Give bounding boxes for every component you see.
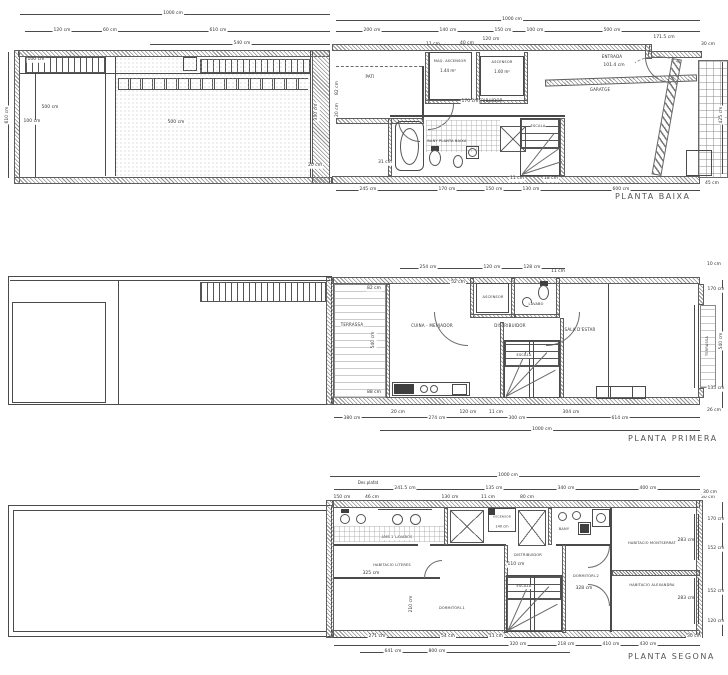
dim-label: 330 cm	[315, 103, 320, 122]
wall-line	[334, 544, 418, 546]
shower-xbox	[518, 510, 546, 546]
dim-label: 320 cm	[509, 643, 528, 648]
roof-inner-box	[12, 302, 106, 403]
dim-label: 45 cm	[704, 182, 720, 187]
shower-xbox	[450, 510, 484, 543]
dim-label: 641 cm	[384, 650, 403, 655]
stipple-floor	[115, 57, 310, 176]
door-arc	[424, 560, 442, 578]
wall-hatched	[511, 278, 515, 318]
dim-label: 170 cm	[438, 188, 457, 193]
plan-title-segona: PLANTA SEGONA	[628, 652, 715, 661]
dim-label: 18 cm	[543, 177, 559, 182]
dim-label: 200 cm	[363, 29, 382, 34]
wall-hatched	[560, 118, 565, 176]
area-label: 1.60 m²	[493, 70, 511, 74]
bathtub-inner	[400, 128, 419, 165]
dim-label: 500 cm	[167, 121, 186, 126]
wall-line	[105, 57, 106, 176]
dim-label: 254 cm	[419, 266, 438, 271]
toilet-icon	[340, 514, 350, 524]
dim-label: 20 cm	[390, 411, 406, 416]
dim-label: 101.4 cm	[602, 64, 625, 69]
room-label-ascensor: ASCENSOR	[493, 515, 511, 518]
room-label-escala: ESCALA	[531, 125, 546, 129]
dim-line	[334, 637, 700, 638]
room-label-entrada: ENTRADA	[602, 55, 622, 59]
room-label-terrassa: TERRASSA	[341, 323, 364, 327]
wall-line	[390, 115, 565, 117]
room-label-balco: TERRASSA	[706, 336, 710, 356]
dim-label: 1000 cm	[497, 474, 519, 479]
dim-label: 1000 cm	[531, 428, 553, 433]
wall-line	[115, 57, 116, 176]
wall-hatched	[560, 318, 564, 398]
dim-label: 82 cm	[336, 80, 341, 96]
stair-stringer	[534, 575, 535, 632]
door-arc	[588, 584, 610, 606]
dim-label: 283 cm	[677, 539, 696, 544]
dim-label: 31 cm	[377, 161, 393, 166]
dim-label: 610 cm	[6, 106, 11, 125]
room-label-ascensor: ASCENSOR	[492, 61, 513, 65]
dim-label: 283 cm	[677, 597, 696, 602]
wall-hatched	[500, 322, 504, 398]
toilet-icon	[429, 150, 441, 166]
hob-box	[452, 384, 467, 395]
room-label-ascensor: ASCENSOR	[483, 296, 504, 300]
dim-label: 128 cm	[523, 266, 542, 271]
dim-label: 30 cm	[686, 635, 702, 640]
stairs	[200, 282, 326, 302]
dim-label: 210 cm	[410, 595, 415, 614]
door-arc	[588, 546, 610, 568]
dim-label: 140 cm	[494, 525, 509, 529]
window	[694, 305, 699, 388]
dim-label: 171.5 cm	[652, 36, 675, 41]
room-label-bany1: AMB 2 LAVABOS	[382, 536, 413, 540]
room-label-escala: ESCALA	[517, 354, 532, 358]
dim-label: 800 cm	[428, 650, 447, 655]
dim-label: 400 cm	[639, 487, 658, 492]
room-label-montserrat: HABITACIO MONTSERRAT	[628, 542, 676, 546]
wall-hatched	[548, 508, 552, 545]
annotation-label: Des plafat	[357, 481, 379, 485]
room-label-pati: PATI	[365, 75, 374, 79]
sofa-tick	[632, 386, 633, 399]
dim-label: 170 cm	[461, 100, 480, 105]
dim-label: 425 cm	[720, 106, 725, 125]
room-label-literes: HABITACIO LITERES	[373, 564, 411, 568]
dim-label: 500 cm	[603, 29, 622, 34]
dim-label: 1000 cm	[501, 18, 523, 23]
dim-label: 274 cm	[428, 417, 447, 422]
dim-label: 170 cm	[707, 518, 726, 523]
roof-line	[118, 280, 119, 405]
dim-label: 82 cm	[366, 287, 382, 292]
dim-label: 120 cm	[483, 266, 502, 271]
room-label-maq: MAQ. ASCENSOR	[434, 60, 466, 64]
terrace-decking	[334, 284, 386, 398]
wall-hatched	[386, 284, 390, 398]
dim-label: 540 cm	[233, 42, 252, 47]
dim-label: 150 cm	[494, 29, 513, 34]
sink-icon	[572, 511, 581, 520]
dim-label: 430 cm	[639, 643, 658, 648]
stove-icon	[394, 384, 414, 394]
sink-icon	[430, 385, 438, 393]
dim-label: 380 cm	[343, 417, 362, 422]
wall-line	[35, 73, 36, 177]
room-label-sala: SALA D'ESTAR	[565, 328, 596, 332]
dim-label: 540 cm	[720, 332, 725, 351]
dim-label: 410 cm	[602, 643, 621, 648]
door-arc	[434, 312, 468, 346]
stair-stringer	[533, 340, 534, 398]
wall-hatched	[562, 545, 566, 633]
garage-corner-box	[686, 150, 712, 176]
toilet-tank	[341, 509, 349, 513]
wall-hatched	[18, 50, 330, 57]
wall-hatched	[14, 50, 20, 184]
partition-wall-hatched	[612, 570, 700, 576]
dim-label: 170 cm	[707, 288, 726, 293]
room-label-distribuidor: DISTRIBUIDOR	[514, 554, 542, 558]
dim-label: 100 cm	[526, 29, 545, 34]
washer-drum	[580, 524, 589, 533]
sofa	[596, 386, 646, 399]
wall-hatched	[332, 44, 650, 51]
wall-hatched	[524, 52, 528, 104]
dim-label: 60 cm	[102, 29, 118, 34]
dim-label: 11 cm	[488, 411, 504, 416]
dim-label: 304 cm	[562, 411, 581, 416]
dim-label: 11 cm	[550, 270, 566, 275]
wall-hatched	[326, 500, 334, 638]
sink-icon	[468, 148, 477, 157]
dim-label: 100 cm	[27, 58, 46, 63]
wall-hatched	[326, 277, 334, 405]
dim-label: 152 cm	[707, 590, 726, 595]
wall-hatched	[332, 500, 700, 508]
dim-label: 110 cm	[507, 563, 526, 568]
sink-icon	[558, 512, 567, 521]
plan-title-baixa: PLANTA BAIXA	[615, 192, 690, 201]
sink-icon	[420, 385, 428, 393]
dim-label: 10 cm	[706, 263, 722, 268]
dim-line	[336, 31, 700, 32]
dim-label: 245 cm	[359, 188, 378, 193]
sofa-tick	[610, 386, 611, 399]
dim-label: 540 cm	[372, 331, 377, 350]
room-label-distribuidor: DISTRIBUIDOR	[494, 324, 525, 328]
dim-label: 241.5 cm	[393, 487, 416, 492]
dim-label: 500 cm	[41, 106, 60, 111]
room-label-lavabo: LAVABO	[528, 303, 543, 307]
room-label-escala: ESCALA	[517, 585, 532, 589]
roof-inner-line	[10, 280, 330, 281]
dim-label: 54 cm	[440, 635, 456, 640]
stairs	[505, 341, 559, 367]
shower-drain	[596, 513, 606, 523]
wall-hatched	[14, 177, 332, 184]
wall-line	[608, 284, 609, 397]
dim-label: 325 cm	[362, 572, 381, 577]
dim-label: 52 cm	[450, 281, 466, 286]
dim-label: 20 cm	[336, 102, 341, 118]
dim-label: 140 cm	[439, 29, 458, 34]
wall-hatched	[470, 314, 515, 318]
dim-label: 300 cm	[508, 417, 527, 422]
room-label-alexandra: HABITACIO ALEXANDRA	[629, 584, 674, 588]
wall-hatched	[698, 284, 704, 305]
dim-label: 120 cm	[53, 29, 72, 34]
wall-line	[430, 544, 506, 546]
dim-label: 150 cm	[485, 188, 504, 193]
dim-label: 614 cm	[611, 417, 630, 422]
room-label-bany2: BANY	[559, 528, 569, 532]
dim-label: 271 cm	[368, 635, 387, 640]
room-label-dorm2: DORMITORI-2	[573, 575, 599, 579]
wall-line	[422, 66, 424, 122]
sink-icon	[392, 514, 403, 525]
dim-label: 30 cm	[702, 491, 718, 496]
dim-label: 88 cm	[366, 391, 382, 396]
dim-label: 130 cm	[522, 188, 541, 193]
dim-line	[336, 190, 700, 191]
dim-label: 26 cm	[706, 409, 722, 414]
counter-line	[378, 509, 432, 510]
area-label: 1.44 m²	[439, 69, 457, 73]
dim-label: 340 cm	[557, 487, 576, 492]
dim-label: 30 cm	[700, 43, 716, 48]
wall-hatched	[444, 508, 448, 545]
plan-title-primera: PLANTA PRIMERA	[628, 434, 718, 443]
toilet-icon	[538, 285, 549, 300]
bidet-icon	[356, 514, 366, 524]
floorplan-canvas: 1000 cm 1000 cm 120 cm 60 cm 610 cm 540 …	[0, 0, 728, 675]
dim-label: 120 cm	[459, 411, 478, 416]
dim-label: 135 cm	[707, 387, 726, 392]
pati-open-edge	[336, 66, 422, 67]
wall-hatched	[388, 118, 392, 176]
dim-label: 1000 cm	[162, 12, 184, 17]
dim-label: 218 cm	[557, 643, 576, 648]
dim-label: 100 cm	[23, 120, 42, 125]
bidet-icon	[453, 155, 463, 168]
dim-label: 610 cm	[209, 29, 228, 34]
dim-label: 152 cm	[707, 547, 726, 552]
window	[694, 578, 699, 624]
room-label-bany: BANY PLANTA BAIXA	[427, 140, 466, 144]
wall-line	[310, 50, 311, 177]
dim-label: 120 cm	[482, 38, 501, 43]
wall-hatched	[698, 388, 704, 398]
room-label-garatge: GARATGE	[590, 88, 610, 92]
dim-label: 120 cm	[707, 620, 726, 625]
wall-hatched	[332, 277, 700, 284]
dim-label: 135 cm	[485, 487, 504, 492]
room-label-dorm1: DORMITORI-1	[439, 607, 465, 611]
sink-icon	[410, 514, 421, 525]
window	[694, 514, 699, 560]
wall-hatched	[470, 278, 474, 318]
dim-label: 20 cm	[307, 164, 323, 169]
dim-label: 11 cm	[509, 177, 525, 182]
roof-inner-box	[13, 510, 327, 632]
dim-label: 11 cm	[488, 635, 504, 640]
